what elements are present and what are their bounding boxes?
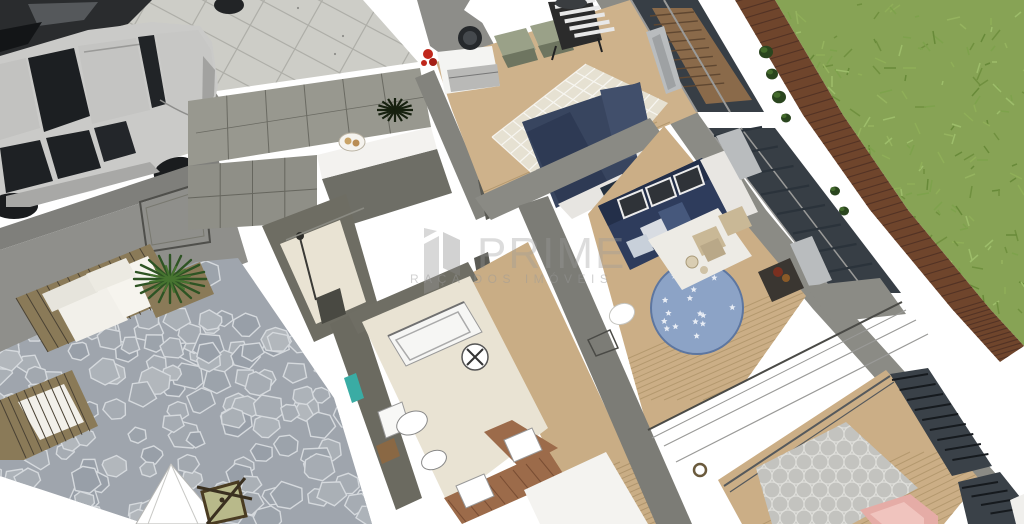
svg-text:PRIME: PRIME	[477, 229, 626, 278]
svg-text:RAÇA DOS IMÓVEIS: RAÇA DOS IMÓVEIS	[410, 271, 613, 286]
